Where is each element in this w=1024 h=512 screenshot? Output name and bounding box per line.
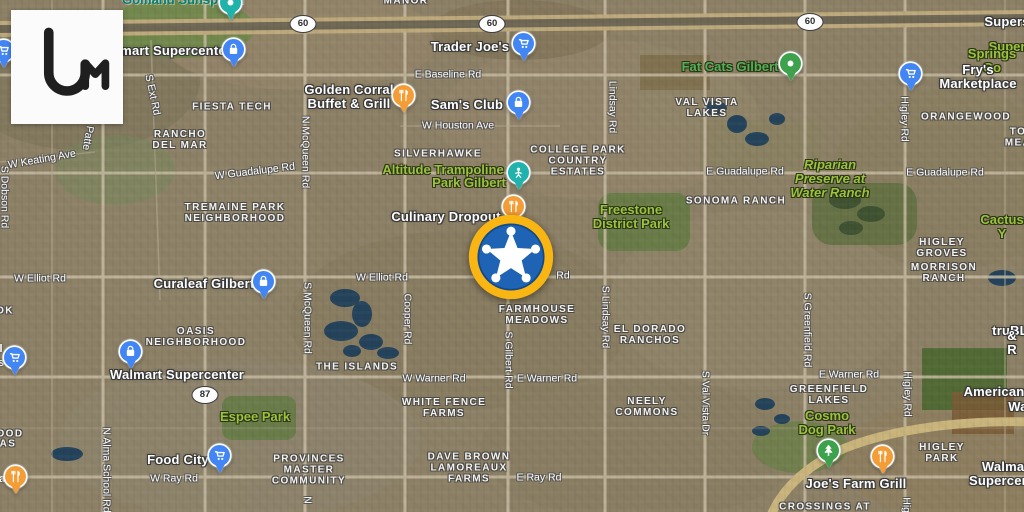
- pin-tail: [878, 465, 888, 474]
- pin-tail: [11, 485, 21, 494]
- park-tree-pin[interactable]: [818, 440, 840, 472]
- map-viewport[interactable]: Golfland SunsplashMANORSupersTrader Joe'…: [0, 0, 1024, 512]
- pin-tail: [229, 58, 239, 67]
- pin-tail: [10, 366, 20, 375]
- shopping-bag-icon: [253, 271, 274, 292]
- pin-tail: [215, 464, 225, 473]
- shopping-bag-pin[interactable]: [508, 92, 530, 124]
- route-shield: 87: [192, 386, 219, 404]
- pin-tail: [399, 104, 409, 113]
- trampoline-jumper-pin[interactable]: [508, 162, 530, 194]
- route-shield: 60: [797, 13, 824, 31]
- pin-tail: [514, 111, 524, 120]
- shopping-cart-pin[interactable]: [900, 63, 922, 95]
- shopping-cart-icon: [513, 33, 534, 54]
- shopping-bag-icon: [508, 92, 529, 113]
- shopping-bag-pin[interactable]: [253, 271, 275, 303]
- restaurant-pin[interactable]: [393, 85, 415, 117]
- place-dot-icon: [780, 53, 801, 74]
- shopping-bag-pin[interactable]: [223, 39, 245, 71]
- liveuamap-logo[interactable]: [11, 10, 123, 124]
- park-tree-icon: [818, 440, 839, 461]
- shopping-bag-pin[interactable]: [120, 341, 142, 373]
- route-shield: 60: [479, 15, 506, 33]
- pin-tail: [824, 459, 834, 468]
- sheriff-star-event-marker[interactable]: [468, 214, 554, 300]
- trampoline-jumper-icon: [508, 162, 529, 183]
- route-shield: 60: [290, 15, 317, 33]
- pin-tail: [519, 52, 529, 61]
- restaurant-pin[interactable]: [872, 446, 894, 478]
- shopping-bag-icon: [223, 39, 244, 60]
- restaurant-icon: [5, 466, 26, 487]
- pin-tail: [226, 11, 236, 20]
- restaurant-icon: [393, 85, 414, 106]
- shopping-cart-pin[interactable]: [209, 445, 231, 477]
- place-dot-pin[interactable]: [220, 0, 242, 24]
- shopping-cart-icon: [900, 63, 921, 84]
- pin-tail: [514, 181, 524, 190]
- shopping-cart-pin[interactable]: [513, 33, 535, 65]
- restaurant-pin[interactable]: [5, 466, 27, 498]
- place-dot-pin[interactable]: [780, 53, 802, 85]
- liveuamap-um-icon: [19, 19, 115, 115]
- shopping-bag-icon: [120, 341, 141, 362]
- pin-tail: [0, 59, 9, 68]
- pin-tail: [786, 72, 796, 81]
- pin-tail: [126, 360, 136, 369]
- pin-tail: [259, 290, 269, 299]
- restaurant-icon: [872, 446, 893, 467]
- shopping-cart-icon: [209, 445, 230, 466]
- shopping-cart-pin[interactable]: [4, 347, 26, 379]
- pin-tail: [906, 82, 916, 91]
- shopping-cart-icon: [4, 347, 25, 368]
- sheriff-star-icon: [468, 214, 554, 300]
